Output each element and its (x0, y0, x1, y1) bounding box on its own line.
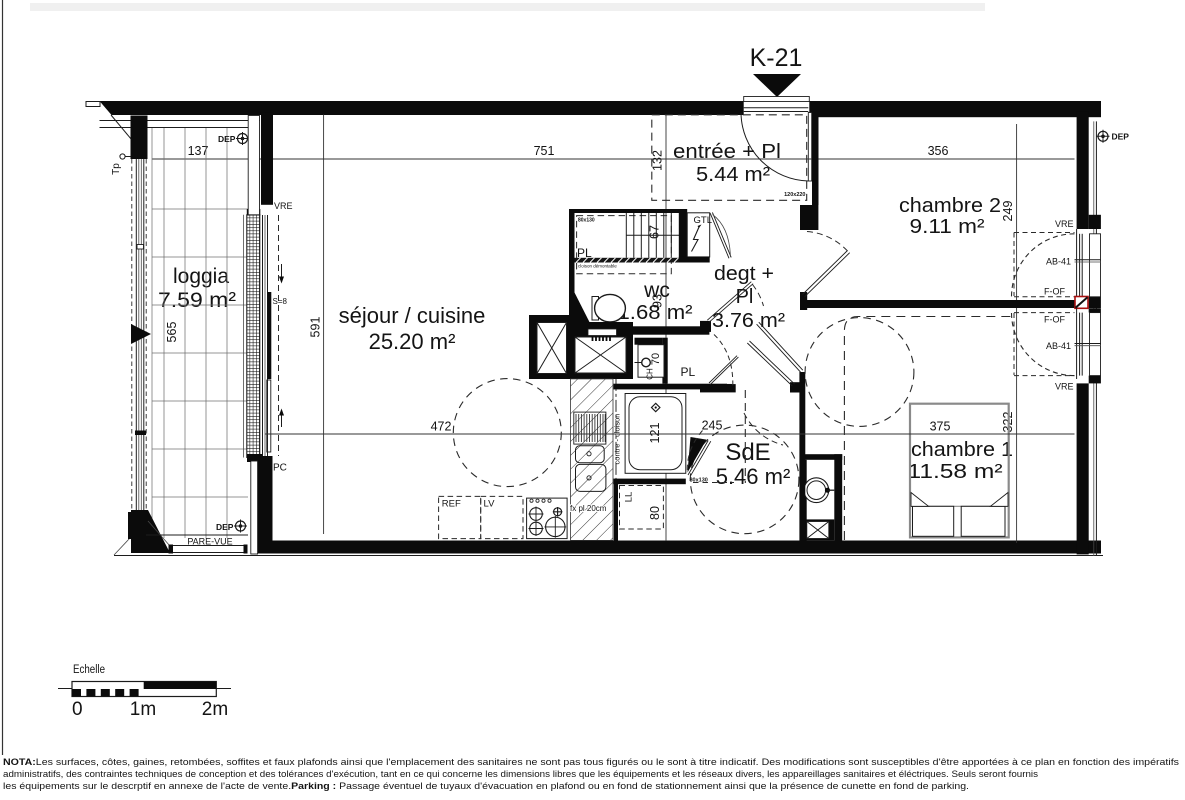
svg-text:132: 132 (651, 150, 665, 171)
svg-text:LL: LL (624, 492, 635, 503)
svg-text:AB-41: AB-41 (1046, 257, 1071, 267)
svg-text:REF: REF (442, 499, 461, 510)
svg-text:cloison démontable: cloison démontable (578, 264, 617, 269)
svg-text:K-21: K-21 (750, 44, 803, 72)
svg-text:5.46 m²: 5.46 m² (716, 464, 791, 489)
svg-text:VRE: VRE (274, 201, 293, 211)
svg-text:entrée + Pl: entrée + Pl (673, 141, 781, 163)
svg-text:375: 375 (930, 420, 951, 434)
svg-text:degt +: degt + (714, 263, 774, 285)
svg-text:565: 565 (165, 322, 179, 343)
svg-text:PL: PL (681, 365, 696, 379)
svg-text:Echelle: Echelle (73, 664, 105, 676)
svg-text:7.59 m²: 7.59 m² (158, 289, 236, 312)
svg-text:245: 245 (702, 419, 723, 433)
svg-text:356: 356 (928, 144, 949, 158)
svg-text:DEP: DEP (218, 134, 236, 144)
svg-text:Pl: Pl (736, 286, 754, 308)
svg-text:2m: 2m (202, 699, 228, 720)
svg-text:249: 249 (1001, 201, 1015, 222)
svg-text:120x220: 120x220 (784, 192, 805, 198)
svg-text:VRE: VRE (1055, 219, 1074, 229)
svg-text:F-OF: F-OF (1044, 315, 1065, 325)
svg-text:70: 70 (650, 353, 662, 365)
svg-text:80: 80 (648, 506, 662, 520)
svg-text:loggia: loggia (173, 265, 229, 288)
svg-text:PC: PC (273, 463, 287, 474)
svg-text:NOTA:Les surfaces, côtes, gain: NOTA:Les surfaces, côtes, gaines, retomb… (3, 757, 1179, 768)
svg-text:472: 472 (431, 420, 452, 434)
svg-text:séjour / cuisine: séjour / cuisine (339, 303, 486, 328)
svg-text:VRE: VRE (1055, 382, 1074, 392)
svg-text:1m: 1m (130, 699, 156, 720)
svg-text:0: 0 (72, 699, 83, 720)
svg-text:3.76 m²: 3.76 m² (712, 310, 785, 332)
svg-text:80x130: 80x130 (690, 478, 708, 484)
svg-text:80x130: 80x130 (578, 218, 595, 224)
svg-text:11.58 m²: 11.58 m² (908, 461, 1003, 483)
svg-text:SdE: SdE (725, 439, 770, 466)
svg-text:CH: CH (646, 368, 655, 380)
svg-text:121: 121 (648, 423, 662, 444)
svg-text:AB-41: AB-41 (1046, 341, 1071, 351)
svg-text:25.20 m²: 25.20 m² (369, 329, 456, 354)
svg-text:contre - cloison: contre - cloison (613, 414, 622, 465)
svg-text:fx pl 20cm: fx pl 20cm (570, 504, 607, 513)
svg-text:9.11 m²: 9.11 m² (910, 216, 985, 238)
svg-text:67: 67 (648, 225, 662, 239)
svg-text:wc: wc (643, 279, 670, 302)
svg-text:chambre 2: chambre 2 (899, 195, 1001, 217)
svg-text:Tp: Tp (111, 163, 122, 175)
svg-text:administratifs, des contrainte: administratifs, des contraintes techniqu… (3, 769, 1038, 780)
svg-text:les équipements sur le descrpt: les équipements sur le descrptif en anne… (3, 781, 969, 792)
svg-text:chambre 1: chambre 1 (911, 439, 1013, 461)
svg-text:DEP: DEP (216, 522, 234, 532)
svg-text:751: 751 (534, 144, 555, 158)
svg-text:GTL: GTL (694, 215, 712, 226)
svg-text:F-OF: F-OF (1044, 287, 1065, 297)
svg-text:5.44 m²: 5.44 m² (696, 164, 770, 186)
svg-text:1.68 m²: 1.68 m² (618, 302, 693, 324)
svg-text:137: 137 (188, 144, 209, 158)
svg-text:591: 591 (309, 317, 323, 338)
svg-text:S=8: S=8 (273, 297, 288, 306)
svg-text:LV: LV (484, 499, 496, 510)
svg-text:DEP: DEP (1112, 132, 1130, 142)
